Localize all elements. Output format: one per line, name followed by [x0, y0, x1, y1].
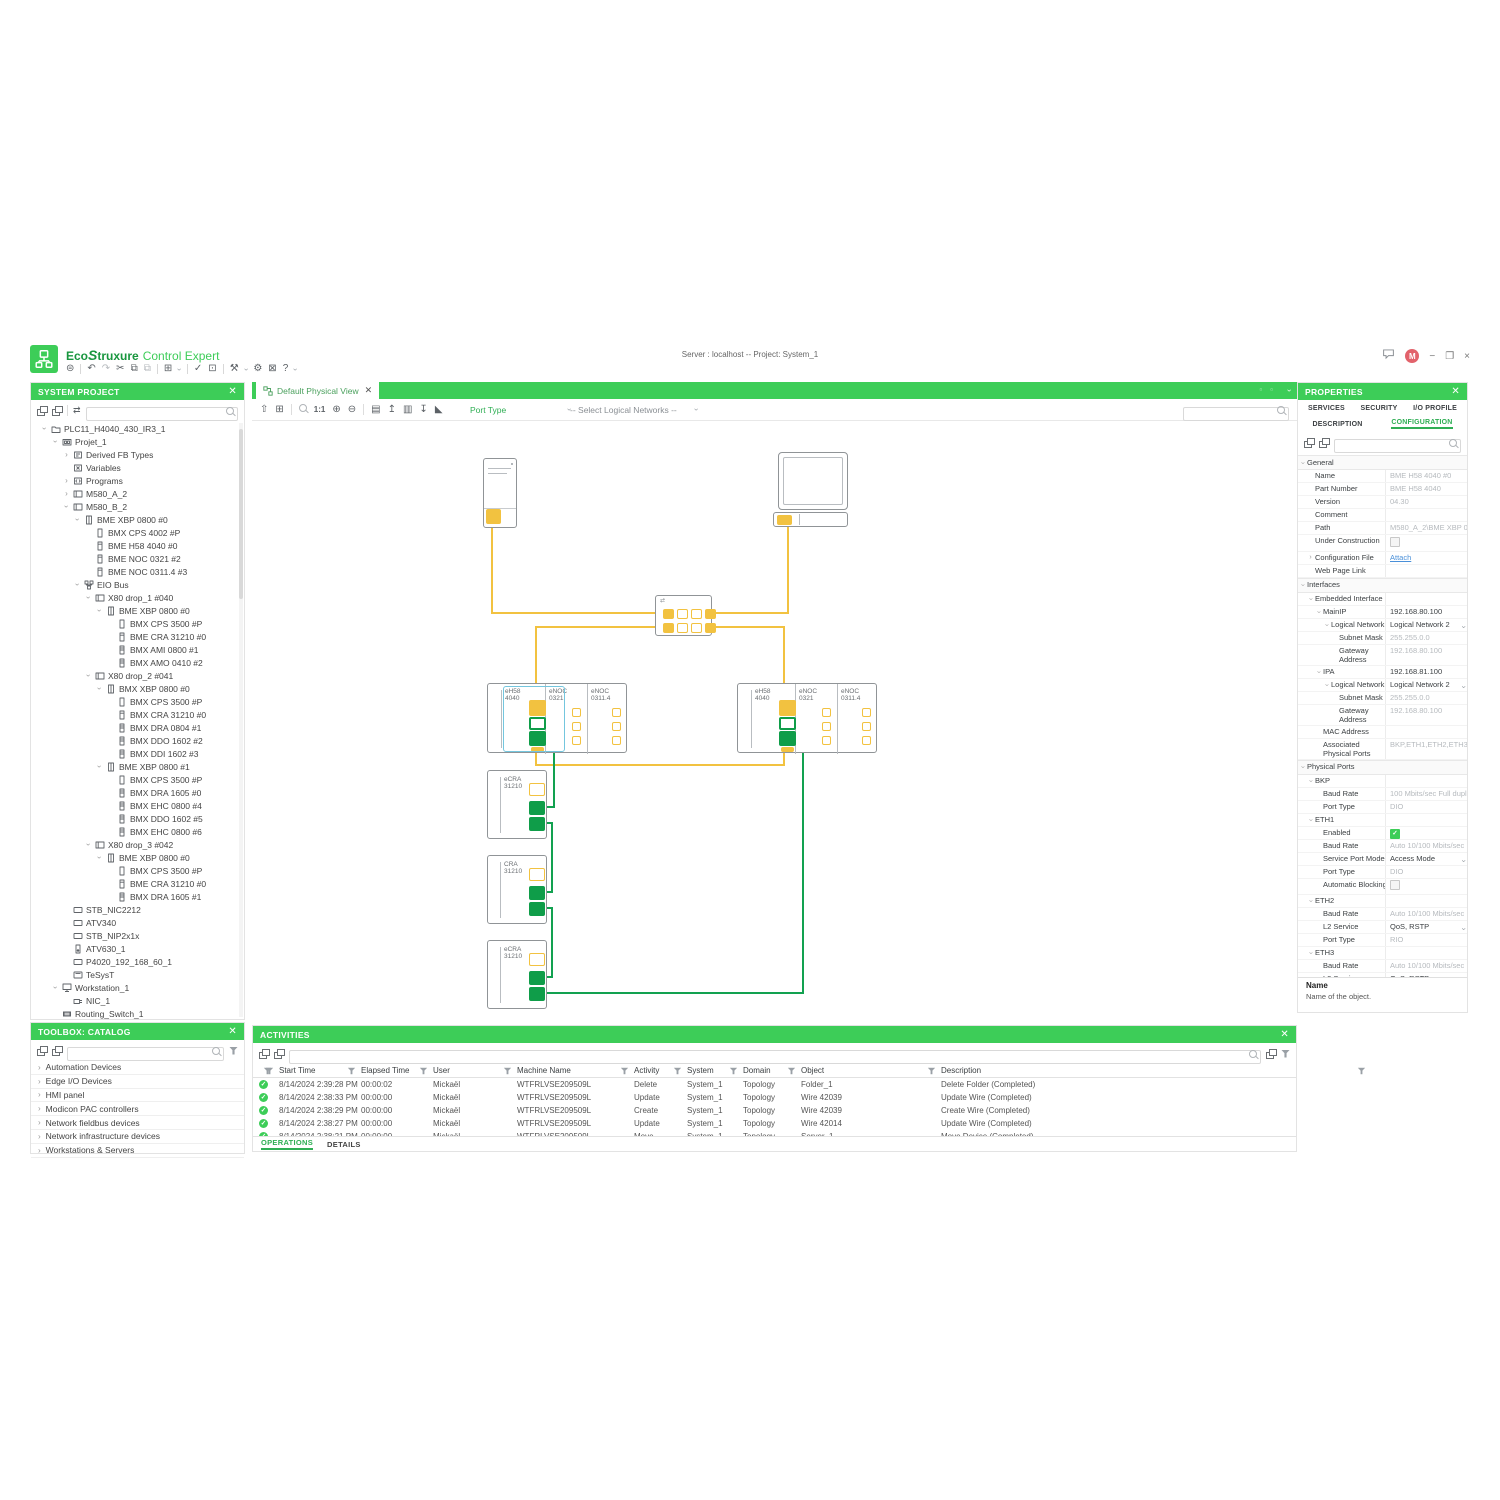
property-row[interactable]: Enabled✓ — [1298, 827, 1467, 840]
copy-icon[interactable]: ⧉ — [131, 363, 138, 375]
tree-item[interactable]: ›PLC11_H4040_430_IR3_1 — [31, 422, 244, 435]
tab-default-physical-view[interactable]: Default Physical View ✕ — [256, 382, 379, 399]
ethernet-wire[interactable] — [492, 524, 655, 613]
close-icon[interactable]: ✕ — [228, 1026, 237, 1037]
tree-item[interactable]: ›BME XBP 0800 #0 — [31, 604, 244, 617]
property-value[interactable] — [1385, 726, 1467, 738]
property-row[interactable]: PathM580_A_2\BME XBP 0800 — [1298, 522, 1467, 535]
tree-item[interactable]: ›BME XBP 0800 #1 — [31, 760, 244, 773]
tree-caret-icon[interactable]: › — [94, 684, 105, 693]
switch-port[interactable] — [663, 623, 674, 633]
tree-item[interactable]: BMX AMO 0410 #2 — [31, 656, 244, 669]
tree-item[interactable]: ›Workstation_1 — [31, 981, 244, 994]
property-value[interactable] — [1385, 895, 1467, 907]
grid-icon[interactable]: ⊞ — [275, 404, 283, 415]
toolbox-category[interactable]: ›Workstations & Servers — [31, 1144, 244, 1158]
property-section[interactable]: ›Physical Ports — [1298, 760, 1467, 775]
property-value[interactable]: 192.168.81.100 — [1385, 666, 1467, 678]
tree-caret-icon[interactable]: › — [61, 450, 72, 459]
property-caret-icon[interactable]: › — [1298, 761, 1307, 773]
property-row[interactable]: Version04.30 — [1298, 496, 1467, 509]
tab-services[interactable]: SERVICES — [1308, 405, 1345, 412]
tree-item[interactable]: BMX DDI 1602 #3 — [31, 747, 244, 760]
tree-item[interactable]: ATV630_1 — [31, 942, 244, 955]
property-value[interactable]: Auto 10/100 Mbits/sec — [1385, 840, 1467, 852]
tree-item[interactable]: BME NOC 0321 #2 — [31, 552, 244, 565]
property-row[interactable]: Under Construction — [1298, 535, 1467, 552]
property-value[interactable] — [1385, 775, 1467, 787]
tree-item[interactable]: ›Derived FB Types — [31, 448, 244, 461]
align-icon[interactable]: ◣ — [435, 404, 443, 415]
switch-port[interactable] — [691, 623, 702, 633]
collapse-all-icon[interactable] — [37, 406, 47, 415]
property-row[interactable]: Baud RateAuto 10/100 Mbits/sec — [1298, 960, 1467, 973]
tab-list-caret-icon[interactable]: › — [1285, 389, 1294, 392]
restore-button[interactable]: ❐ — [1445, 351, 1454, 362]
tree-item[interactable]: BMX CRA 31210 #0 — [31, 708, 244, 721]
property-row[interactable]: Web Page Link — [1298, 565, 1467, 578]
tools-icon[interactable]: ⚒ — [230, 363, 239, 375]
filter-icon[interactable] — [348, 1068, 356, 1075]
sync-icon[interactable]: ⇄ — [73, 405, 81, 416]
cra-rio-port[interactable] — [529, 987, 545, 1001]
window-layout-icon[interactable]: ⊞ — [164, 363, 172, 375]
property-row[interactable]: ›ETH2 — [1298, 895, 1467, 908]
layout-icon[interactable] — [1266, 1049, 1276, 1058]
property-value[interactable] — [1385, 814, 1467, 826]
toolbox-category[interactable]: ›HMI panel — [31, 1089, 244, 1103]
tree-caret-icon[interactable]: › — [83, 671, 94, 680]
fit-screen-icon[interactable]: ⊠ — [268, 363, 276, 375]
tree-item[interactable]: BMX CPS 3500 #P — [31, 773, 244, 786]
noc-port[interactable] — [572, 708, 581, 717]
property-caret-icon[interactable]: › — [1298, 457, 1307, 469]
tree-caret-icon[interactable]: › — [61, 502, 72, 511]
tree-item[interactable]: ›BME XBP 0800 #0 — [31, 851, 244, 864]
property-value[interactable]: Auto 10/100 Mbits/sec — [1385, 908, 1467, 920]
tree-item[interactable]: STB_NIC2212 — [31, 903, 244, 916]
property-caret-icon[interactable]: › — [1322, 679, 1331, 691]
collapse-all-icon[interactable] — [259, 1049, 269, 1058]
column-header[interactable]: System — [687, 1066, 714, 1075]
activity-row[interactable]: ✓8/14/2024 2:38:27 PM00:00:00MickaëlWTFR… — [253, 1117, 1296, 1130]
help-icon[interactable]: ? — [283, 363, 289, 375]
cpu-bkp-port[interactable] — [781, 747, 794, 752]
cut-icon[interactable]: ✂ — [116, 363, 124, 375]
workstation-eth-port[interactable] — [777, 515, 792, 525]
tree-item[interactable]: BMX DRA 0804 #1 — [31, 721, 244, 734]
tree-item-label: BME XBP 0800 #1 — [119, 762, 190, 772]
property-caret-icon[interactable]: › — [1298, 579, 1307, 591]
switch-port[interactable] — [705, 609, 716, 619]
property-caret-icon[interactable]: › — [1306, 775, 1315, 787]
property-value[interactable]: 192.168.80.100 — [1385, 606, 1467, 618]
property-value[interactable]: 100 Mbits/sec Full duplex — [1385, 788, 1467, 800]
expand-all-icon[interactable] — [1319, 438, 1329, 447]
switch-port[interactable] — [663, 609, 674, 619]
toolbox-category[interactable]: ›Modicon PAC controllers — [31, 1102, 244, 1116]
property-row[interactable]: ›Logical NetworkLogical Network 2› — [1298, 619, 1467, 632]
noc-port[interactable] — [822, 722, 831, 731]
tree-item[interactable]: STB_NIP2x1x — [31, 929, 244, 942]
property-caret-icon[interactable]: › — [1322, 619, 1331, 631]
property-row[interactable]: Baud Rate100 Mbits/sec Full duplex — [1298, 788, 1467, 801]
tree-item[interactable]: TeSysT — [31, 968, 244, 981]
expand-all-icon[interactable] — [52, 406, 62, 415]
activities-search-input[interactable] — [289, 1050, 1261, 1064]
property-row[interactable]: Port TypeDIO — [1298, 801, 1467, 814]
column-header[interactable]: Start Time — [279, 1066, 315, 1075]
collapse-all-icon[interactable] — [37, 1046, 47, 1055]
property-row[interactable]: NameBME H58 4040 #0 — [1298, 470, 1467, 483]
toolbox-category[interactable]: ›Network fieldbus devices — [31, 1116, 244, 1130]
filter-icon[interactable] — [1281, 1050, 1290, 1058]
property-row[interactable]: Port TypeRIO — [1298, 934, 1467, 947]
property-section[interactable]: ›General — [1298, 455, 1467, 470]
property-value[interactable] — [1385, 593, 1467, 605]
property-row[interactable]: Gateway Address192.168.80.100 — [1298, 645, 1467, 666]
noc-port[interactable] — [862, 736, 871, 745]
tree-item[interactable]: ›Programs — [31, 474, 244, 487]
dropdown-caret-icon[interactable]: › — [1458, 685, 1467, 688]
tree-item[interactable]: ›M580_A_2 — [31, 487, 244, 500]
cra-rio-port[interactable] — [529, 971, 545, 985]
column-header[interactable]: Object — [801, 1066, 824, 1075]
x80-drop-rack[interactable]: eCRA 31210 — [487, 770, 547, 839]
tree-item[interactable]: ›X80 drop_2 #041 — [31, 669, 244, 682]
filter-icon[interactable] — [788, 1068, 796, 1075]
toolbox-search-input[interactable] — [67, 1047, 224, 1061]
checkbox-icon[interactable] — [1390, 880, 1400, 890]
property-row[interactable]: ›Embedded Interface — [1298, 593, 1467, 606]
property-row[interactable]: Port TypeDIO — [1298, 866, 1467, 879]
filter-icon[interactable] — [621, 1068, 629, 1075]
property-row[interactable]: Baud RateAuto 10/100 Mbits/sec — [1298, 840, 1467, 853]
property-caret-icon[interactable]: › — [1306, 895, 1315, 907]
dropdown-caret-icon[interactable]: › — [291, 368, 300, 371]
property-caret-icon[interactable]: › — [1306, 947, 1315, 959]
tree-item[interactable]: ›BME XBP 0800 #0 — [31, 513, 244, 526]
tree-caret-icon[interactable]: › — [94, 853, 105, 862]
tree-item[interactable]: BME CRA 31210 #0 — [31, 630, 244, 643]
expand-all-icon[interactable] — [52, 1046, 62, 1055]
project-search-input[interactable] — [86, 407, 238, 421]
cra-rio-port[interactable] — [529, 886, 545, 900]
property-value[interactable]: Attach — [1385, 552, 1467, 564]
property-value[interactable]: BME H58 4040 — [1385, 483, 1467, 495]
port-type-dropdown[interactable]: Port Type› — [470, 405, 571, 415]
tab-configuration[interactable]: CONFIGURATION — [1391, 419, 1452, 429]
switch-port[interactable] — [705, 623, 716, 633]
property-value[interactable] — [1385, 565, 1467, 577]
tab-details[interactable]: DETAILS — [327, 1140, 361, 1149]
column-header[interactable]: Machine Name — [517, 1066, 571, 1075]
workstation-device[interactable] — [773, 452, 853, 527]
minimize-button[interactable]: − — [1429, 351, 1435, 362]
property-value[interactable]: ✓ — [1385, 827, 1467, 839]
property-row[interactable]: ›Logical NetworkLogical Network 2› — [1298, 679, 1467, 692]
filter-icon[interactable] — [420, 1068, 428, 1075]
property-row[interactable]: ›MainIP192.168.80.100 — [1298, 606, 1467, 619]
x80-drop-rack[interactable]: eCRA 31210 — [487, 940, 547, 1009]
tree-item[interactable]: BME H58 4040 #0 — [31, 539, 244, 552]
property-row[interactable]: Baud RateAuto 10/100 Mbits/sec — [1298, 908, 1467, 921]
tree-item[interactable]: Routing_Switch_1 — [31, 1007, 244, 1020]
tree-caret-icon[interactable]: › — [72, 515, 83, 524]
property-value[interactable]: QoS, RSTP› — [1385, 921, 1467, 933]
ethernet-wire[interactable] — [712, 527, 788, 613]
noc-port[interactable] — [822, 736, 831, 745]
property-value[interactable] — [1385, 879, 1467, 895]
property-value[interactable]: 192.168.80.100 — [1385, 645, 1467, 665]
filter-icon[interactable] — [928, 1068, 936, 1075]
server-eth-port[interactable] — [486, 509, 501, 524]
property-row[interactable]: ›Configuration FileAttach — [1298, 552, 1467, 565]
property-caret-icon[interactable]: › — [1306, 552, 1315, 564]
tree-item[interactable]: ›M580_B_2 — [31, 500, 244, 513]
redo-icon[interactable]: ↷ — [102, 363, 110, 375]
column-header[interactable]: Description — [941, 1066, 981, 1075]
tree-caret-icon[interactable]: › — [61, 476, 72, 485]
feedback-chat-icon[interactable] — [1382, 347, 1395, 365]
property-section[interactable]: ›Interfaces — [1298, 578, 1467, 593]
properties-search-input[interactable] — [1334, 439, 1461, 453]
undo-icon[interactable]: ↶ — [87, 363, 95, 375]
tree-item[interactable]: P4020_192_168_60_1 — [31, 955, 244, 968]
property-value[interactable] — [1385, 509, 1467, 521]
cpu-rio-port[interactable] — [779, 717, 796, 730]
property-row[interactable]: Subnet Mask255.255.0.0 — [1298, 632, 1467, 645]
filter-icon[interactable] — [1358, 1068, 1366, 1075]
cra-service-port[interactable] — [529, 783, 545, 796]
tree-item[interactable]: ›EIO Bus — [31, 578, 244, 591]
checkbox-icon[interactable] — [1390, 537, 1400, 547]
property-row[interactable]: L2 ServiceQoS, RSTP› — [1298, 921, 1467, 934]
switch-port[interactable] — [677, 609, 688, 619]
zoom-in-icon[interactable]: ⊕ — [332, 404, 340, 415]
tree-item[interactable]: Variables — [31, 461, 244, 474]
cra-rio-port[interactable] — [529, 801, 545, 815]
noc-port[interactable] — [612, 722, 621, 731]
checkbox-checked-icon[interactable]: ✓ — [1390, 829, 1400, 839]
print-icon[interactable]: ▥ — [403, 404, 412, 415]
property-value[interactable]: RIO — [1385, 934, 1467, 946]
session-icon[interactable]: ⊜ — [66, 363, 74, 375]
dropdown-caret-icon[interactable]: › — [241, 368, 250, 371]
column-header[interactable]: Elapsed Time — [361, 1066, 409, 1075]
property-row[interactable]: ›BKP — [1298, 775, 1467, 788]
cra-rio-port[interactable] — [529, 817, 545, 831]
tree-item[interactable]: BMX CPS 3500 #P — [31, 617, 244, 630]
tree-caret-icon[interactable]: › — [50, 983, 61, 992]
property-row[interactable]: MAC Address — [1298, 726, 1467, 739]
dropdown-caret-icon[interactable]: › — [1458, 928, 1467, 931]
dropdown-caret-icon[interactable]: › — [1458, 625, 1467, 628]
validate-icon[interactable]: ✓ — [194, 363, 202, 375]
view-tabbar: Default Physical View ✕ ▫▫ › — [252, 382, 1297, 399]
property-value[interactable]: 04.30 — [1385, 496, 1467, 508]
noc-port[interactable] — [822, 708, 831, 717]
physical-view-canvas[interactable]: ⇄eH58 4040eNOC 0321eNOC 0311.4eH58 4040e… — [252, 421, 1297, 1025]
module-icon — [116, 813, 127, 824]
tree-caret-icon[interactable]: › — [50, 437, 61, 446]
filter-icon[interactable] — [730, 1068, 738, 1075]
tree-item[interactable]: ATV340 — [31, 916, 244, 929]
property-row[interactable]: Subnet Mask255.255.0.0 — [1298, 692, 1467, 705]
noc-port[interactable] — [612, 736, 621, 745]
tree-caret-icon[interactable]: › — [94, 762, 105, 771]
m580-rack-b[interactable]: eH58 4040eNOC 0321eNOC 0311.4 — [737, 683, 877, 753]
column-header[interactable]: Domain — [743, 1066, 771, 1075]
tree-item[interactable]: BMX EHC 0800 #4 — [31, 799, 244, 812]
deploy-icon[interactable]: ⊡ — [208, 363, 216, 375]
tree-caret-icon[interactable]: › — [72, 580, 83, 589]
activity-row[interactable]: ✓8/14/2024 2:39:28 PM00:00:02MickaëlWTFR… — [253, 1078, 1296, 1091]
close-icon[interactable]: ✕ — [1451, 386, 1460, 397]
noc-port[interactable] — [572, 722, 581, 731]
zoom-out-icon[interactable]: ⊖ — [348, 404, 356, 415]
tree-item[interactable]: BME NOC 0311.4 #3 — [31, 565, 244, 578]
expand-all-icon[interactable] — [274, 1049, 284, 1058]
tree-item[interactable]: BMX DDO 1602 #2 — [31, 734, 244, 747]
server-device[interactable] — [483, 458, 517, 528]
tree-item[interactable]: BMX AMI 0800 #1 — [31, 643, 244, 656]
close-window-button[interactable]: × — [1464, 351, 1470, 362]
tree-caret-icon[interactable]: › — [83, 593, 94, 602]
logical-networks-dropdown[interactable]: -- Select Logical Networks --› — [570, 405, 697, 415]
tab-description[interactable]: DESCRIPTION — [1312, 421, 1362, 428]
property-value[interactable]: 192.168.80.100 — [1385, 705, 1467, 725]
tree-item[interactable]: ›BMX XBP 0800 #0 — [31, 682, 244, 695]
canvas-search-input[interactable] — [1183, 407, 1289, 421]
x80-drop-rack[interactable]: CRA 31210 — [487, 855, 547, 924]
tree-item-label: BME NOC 0311.4 #3 — [108, 567, 187, 577]
filter-icon[interactable] — [674, 1068, 682, 1075]
noc-port[interactable] — [612, 708, 621, 717]
property-row[interactable]: Comment — [1298, 509, 1467, 522]
property-value[interactable]: DIO — [1385, 866, 1467, 878]
export-image-icon[interactable]: ↥ — [388, 404, 396, 415]
save-view-icon[interactable]: ▤ — [371, 404, 380, 415]
tree-caret-icon[interactable]: › — [94, 606, 105, 615]
property-value[interactable]: Auto 10/100 Mbits/sec — [1385, 960, 1467, 972]
property-value[interactable] — [1385, 947, 1467, 959]
property-row[interactable]: Part NumberBME H58 4040 — [1298, 483, 1467, 496]
activity-row[interactable]: ✓8/14/2024 2:38:33 PM00:00:00MickaëlWTFR… — [253, 1091, 1296, 1104]
cpu-rio-port[interactable] — [779, 731, 796, 746]
tree-caret-icon[interactable]: › — [61, 489, 72, 498]
switch-port[interactable] — [691, 609, 702, 619]
rio-ring-wire[interactable] — [543, 738, 803, 993]
property-value[interactable]: M580_A_2\BME XBP 0800 — [1385, 522, 1467, 534]
cpu-service-port[interactable] — [779, 700, 796, 716]
tree-item[interactable]: BMX EHC 0800 #6 — [31, 825, 244, 838]
tree-item[interactable]: BMX CPS 4002 #P — [31, 526, 244, 539]
tree-caret-icon[interactable]: › — [83, 840, 94, 849]
column-header[interactable]: Activity — [634, 1066, 659, 1075]
property-value[interactable]: BKP,ETH1,ETH2,ETH3 — [1385, 739, 1467, 759]
routing-switch-device[interactable]: ⇄ — [655, 595, 712, 636]
property-row[interactable]: Automatic Blocking — [1298, 879, 1467, 896]
column-header[interactable]: User — [433, 1066, 450, 1075]
cra-service-port[interactable] — [529, 868, 545, 881]
noc-port[interactable] — [572, 736, 581, 745]
activity-row[interactable]: ✓8/14/2024 2:38:29 PM00:00:00MickaëlWTFR… — [253, 1104, 1296, 1117]
property-caret-icon[interactable]: › — [1306, 593, 1315, 605]
toolbox-category[interactable]: ›Edge I/O Devices — [31, 1075, 244, 1089]
property-caret-icon[interactable]: › — [1306, 814, 1315, 826]
toolbox-category[interactable]: ›Network infrastructure devices — [31, 1130, 244, 1144]
toolbox-category[interactable]: ›Automation Devices — [31, 1061, 244, 1075]
property-value[interactable] — [1385, 535, 1467, 551]
property-value[interactable]: BME H58 4040 #0 — [1385, 470, 1467, 482]
paste-icon[interactable]: ⧉ — [144, 363, 151, 375]
property-row[interactable]: Associated Physical PortsBKP,ETH1,ETH2,E… — [1298, 739, 1467, 760]
tab-operations[interactable]: OPERATIONS — [261, 1138, 313, 1150]
tree-item[interactable]: BMX DRA 1605 #1 — [31, 890, 244, 903]
dropdown-caret-icon[interactable]: › — [1458, 859, 1467, 862]
module-label: eCRA 31210 — [504, 776, 522, 790]
noc-port[interactable] — [862, 722, 871, 731]
settings-gear-icon[interactable]: ⚙ — [253, 363, 262, 375]
tree-item[interactable]: NIC_1 — [31, 994, 244, 1007]
export-view-icon[interactable]: ⇧ — [260, 404, 268, 415]
filter-icon[interactable] — [504, 1068, 512, 1075]
noc-port[interactable] — [862, 708, 871, 717]
import-view-icon[interactable]: ↧ — [419, 404, 427, 415]
property-value[interactable]: 255.255.0.0 — [1385, 632, 1467, 644]
tree-item[interactable]: BMX CPS 3500 #P — [31, 695, 244, 708]
property-value[interactable]: Logical Network 2› — [1385, 619, 1467, 631]
tree-item[interactable]: ›X80 drop_1 #040 — [31, 591, 244, 604]
cra-service-port[interactable] — [529, 953, 545, 966]
property-value[interactable]: Logical Network 2› — [1385, 679, 1467, 691]
property-caret-icon[interactable]: › — [1314, 666, 1323, 678]
property-row[interactable]: Service Port ModeAccess Mode› — [1298, 853, 1467, 866]
zoom-search-icon[interactable] — [299, 404, 307, 415]
tree-item[interactable]: BMX CPS 3500 #P — [31, 864, 244, 877]
property-row[interactable]: ›IPA192.168.81.100 — [1298, 666, 1467, 679]
close-tab-icon[interactable]: ✕ — [365, 385, 373, 396]
close-icon[interactable]: ✕ — [1280, 1029, 1289, 1040]
tree-scrollbar[interactable] — [239, 423, 243, 1017]
property-caret-icon[interactable]: › — [1314, 606, 1323, 618]
zoom-actual-label[interactable]: 1:1 — [314, 405, 326, 414]
filter-icon[interactable] — [229, 1047, 238, 1055]
tabbar-action-icons[interactable]: ▫▫ — [1259, 385, 1273, 394]
tree-item[interactable]: BME CRA 31210 #0 — [31, 877, 244, 890]
tree-item[interactable]: ›X80 drop_3 #042 — [31, 838, 244, 851]
collapse-all-icon[interactable] — [1304, 438, 1314, 447]
tab-security[interactable]: SECURITY — [1361, 405, 1398, 412]
property-value[interactable]: 255.255.0.0 — [1385, 692, 1467, 704]
dropdown-caret-icon[interactable]: › — [175, 368, 184, 371]
property-row[interactable]: Gateway Address192.168.80.100 — [1298, 705, 1467, 726]
tree-item[interactable]: ›Projet_1 — [31, 435, 244, 448]
tree-item[interactable]: BMX DDO 1602 #5 — [31, 812, 244, 825]
tree-item[interactable]: BMX DRA 1605 #0 — [31, 786, 244, 799]
close-icon[interactable]: ✕ — [228, 386, 237, 397]
tree-caret-icon[interactable]: › — [39, 424, 50, 433]
property-row[interactable]: ›ETH3 — [1298, 947, 1467, 960]
user-avatar[interactable]: M — [1405, 349, 1419, 363]
switch-port[interactable] — [677, 623, 688, 633]
tab-io-profile[interactable]: I/O PROFILE — [1413, 405, 1457, 412]
property-value[interactable]: DIO — [1385, 801, 1467, 813]
property-value[interactable]: Access Mode› — [1385, 853, 1467, 865]
cra-rio-port[interactable] — [529, 902, 545, 916]
property-row[interactable]: ›ETH1 — [1298, 814, 1467, 827]
